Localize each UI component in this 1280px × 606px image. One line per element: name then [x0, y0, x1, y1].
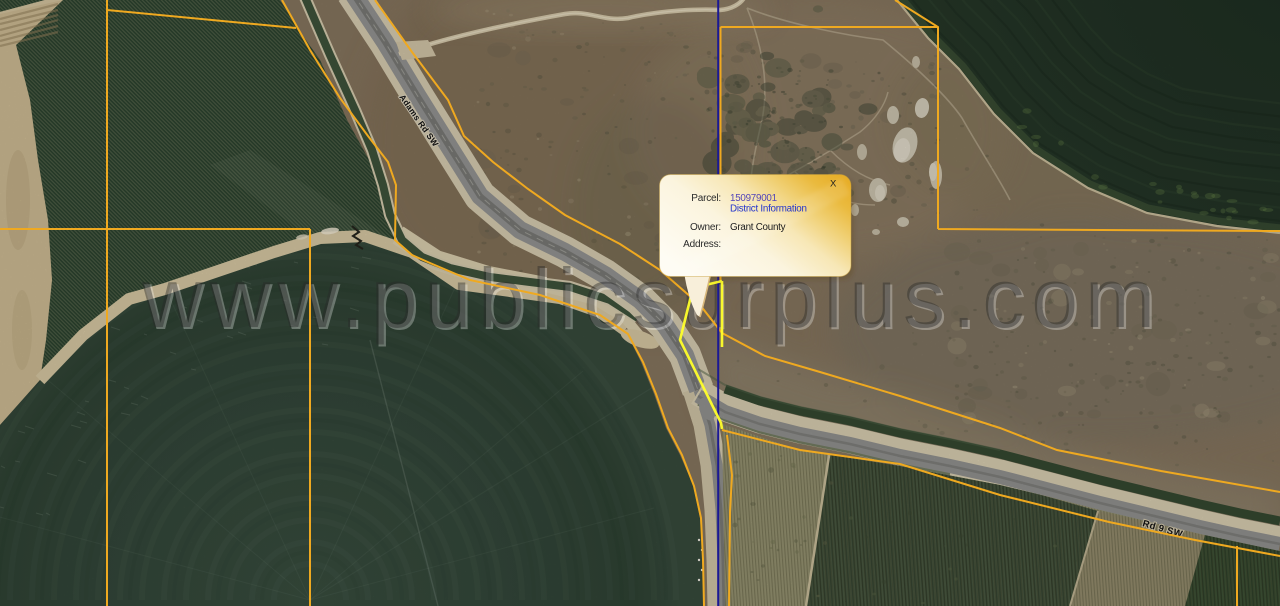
svg-text:Owner:: Owner:: [690, 222, 721, 233]
svg-text:Parcel:: Parcel:: [691, 193, 721, 204]
svg-text:Grant County: Grant County: [730, 222, 786, 233]
svg-text:District Information: District Information: [730, 204, 807, 215]
svg-text:150979001: 150979001: [730, 193, 777, 204]
svg-text:Address:: Address:: [683, 239, 721, 250]
svg-text:X: X: [830, 179, 837, 190]
